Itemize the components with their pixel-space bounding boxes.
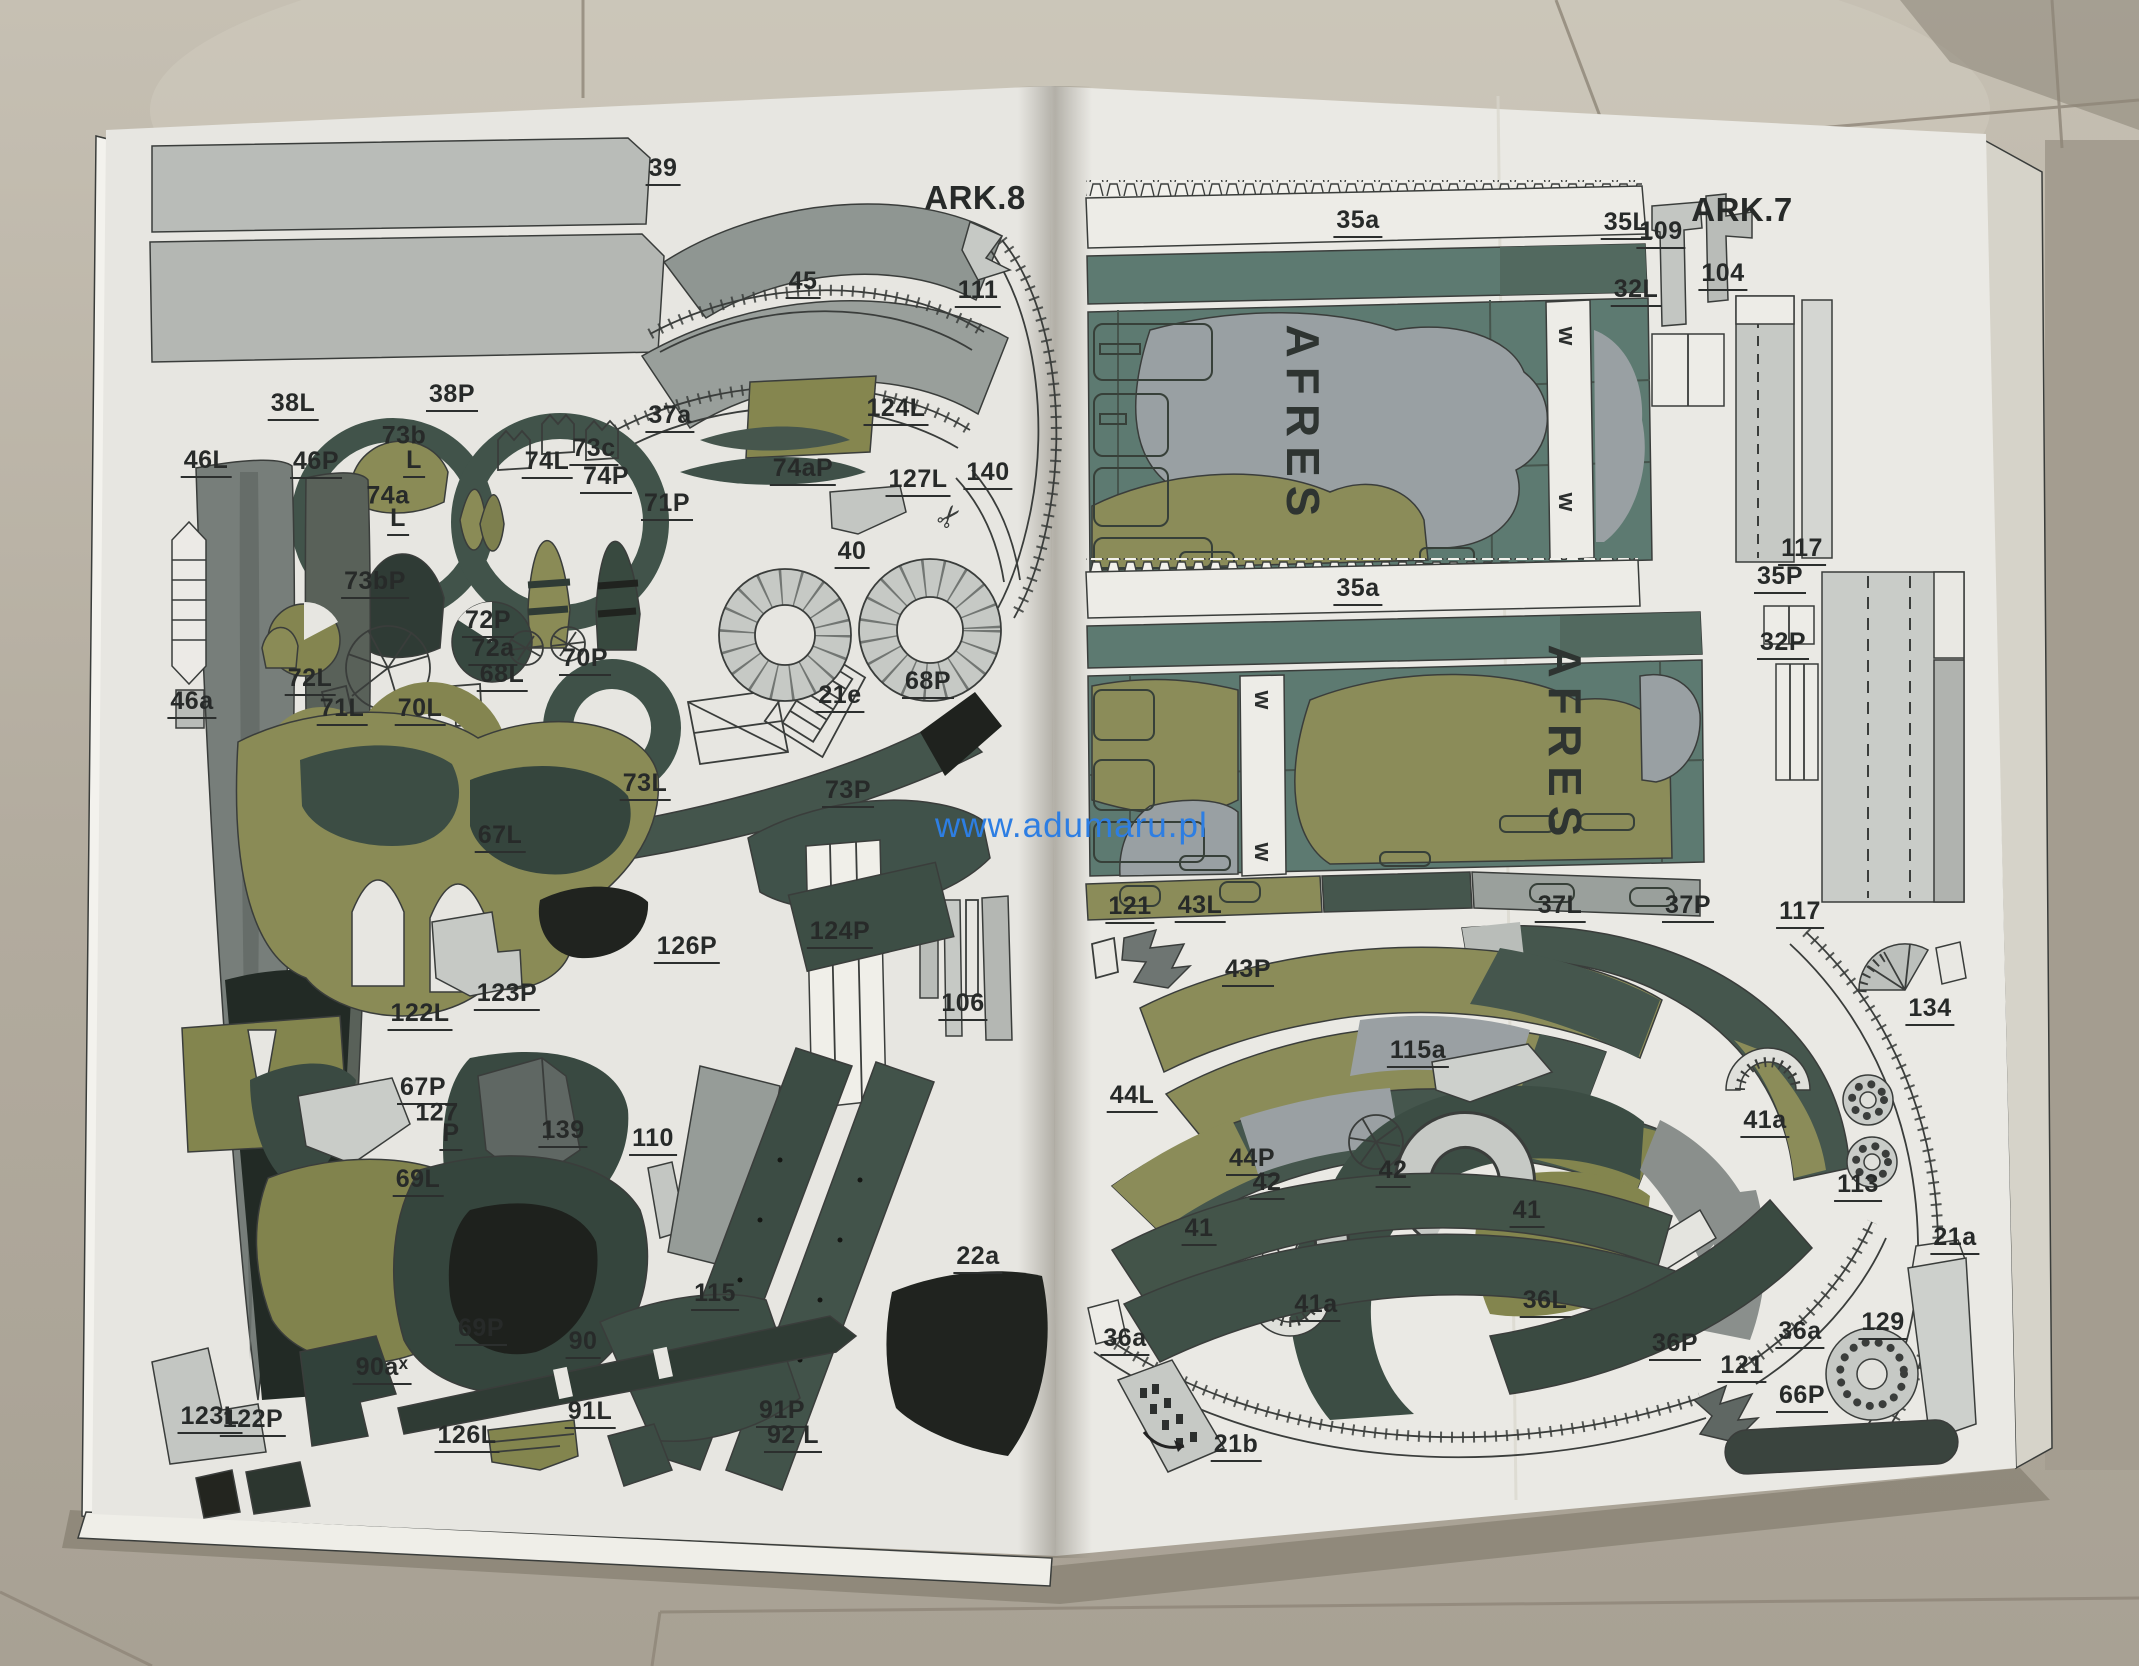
part-32P [1776,664,1818,780]
camo-olive-left [1092,680,1238,815]
w-strip-b [1240,675,1286,876]
w-strip-a [1546,300,1594,560]
part-39-strip-a [152,138,650,232]
camo-olive-blob-b [1295,674,1672,864]
camo-olive-blob-a [1092,474,1428,570]
photo-scene: 39 45 ARK.8 111 38L 38P 46L 46P 73b L 74… [0,0,2139,1666]
open-model-book [78,86,2052,1586]
part-129-bearing [1826,1328,1918,1420]
left-page-parts [150,138,1056,1518]
part-32L [1652,334,1724,406]
photo-canvas [0,0,2139,1666]
camo-panel-a [1088,298,1652,574]
part-35P [1764,606,1814,644]
part-46a-ladder [172,522,206,728]
part-117-rect [1822,572,1964,902]
part-104-column [1736,296,1832,562]
camo-panel-b [1088,660,1704,876]
part-39-strip-b [150,234,664,362]
white-arch-a [352,880,404,986]
